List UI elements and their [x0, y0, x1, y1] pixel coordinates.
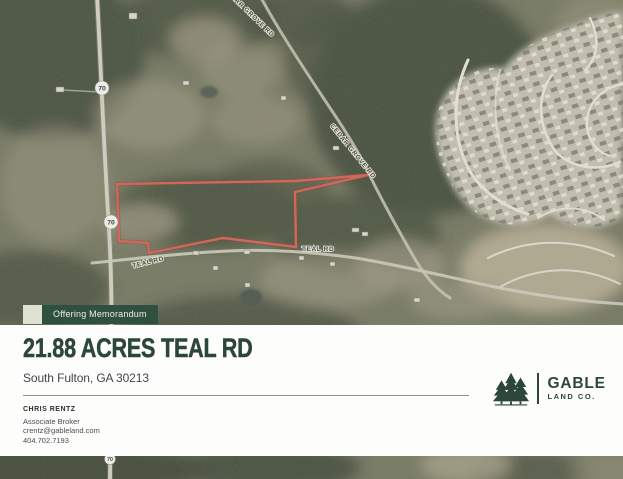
badge-label: Offering Memorandum	[42, 305, 158, 324]
divider-line	[23, 395, 469, 396]
page-title: 21.88 ACRES TEAL RD	[23, 333, 253, 364]
logo-divider	[537, 373, 539, 404]
pine-trees-icon	[492, 369, 530, 407]
broker-phone: 404.702.7193	[23, 436, 100, 446]
broker-contact-block: CHRIS RENTZ Associate Broker crentz@gabl…	[23, 406, 100, 445]
info-panel: Offering Memorandum 21.88 ACRES TEAL RD …	[0, 325, 623, 456]
badge-accent-square	[23, 305, 42, 324]
logo-secondary-text: LAND CO.	[548, 392, 606, 401]
offering-memorandum-cover: CEDAR GROVE RD CEDAR GROVE RD TEAL RD TE…	[0, 0, 623, 479]
gable-land-co-logo: GABLE LAND CO.	[492, 369, 606, 407]
page-subtitle: South Fulton, GA 30213	[23, 371, 149, 385]
broker-role: Associate Broker	[23, 417, 100, 427]
broker-name: CHRIS RENTZ	[23, 406, 100, 413]
logo-wordmark: GABLE LAND CO.	[548, 376, 606, 401]
offering-memorandum-badge: Offering Memorandum	[23, 305, 158, 324]
logo-primary-text: GABLE	[548, 376, 606, 391]
broker-email: crentz@gableland.com	[23, 426, 100, 436]
